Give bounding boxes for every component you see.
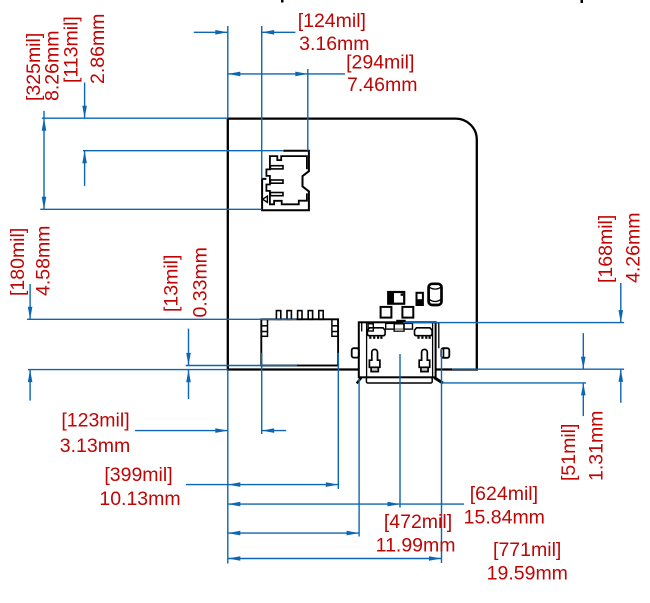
svg-text:[472mil]: [472mil] bbox=[384, 511, 452, 533]
svg-text:[51mil]: [51mil] bbox=[558, 424, 580, 481]
svg-text:4.58mm: 4.58mm bbox=[33, 226, 55, 296]
svg-text:2.86mm: 2.86mm bbox=[87, 14, 109, 84]
svg-text:4.26mm: 4.26mm bbox=[623, 213, 645, 283]
svg-text:3.13mm: 3.13mm bbox=[60, 435, 130, 457]
svg-text:[124mil]: [124mil] bbox=[298, 10, 366, 32]
svg-text:[399mil]: [399mil] bbox=[104, 464, 172, 486]
svg-text:[113mil]: [113mil] bbox=[60, 16, 82, 83]
svg-text:[168mil]: [168mil] bbox=[595, 215, 617, 283]
svg-text:0.33mm: 0.33mm bbox=[190, 247, 212, 317]
svg-text:[294mil]: [294mil] bbox=[346, 52, 414, 74]
svg-text:7.46mm: 7.46mm bbox=[347, 74, 417, 96]
svg-text:[123mil]: [123mil] bbox=[61, 410, 129, 432]
svg-text:10.13mm: 10.13mm bbox=[99, 488, 180, 510]
svg-text:[180mil]: [180mil] bbox=[7, 228, 29, 296]
svg-text:[624mil]: [624mil] bbox=[470, 483, 538, 505]
svg-text:11.99mm: 11.99mm bbox=[376, 535, 456, 557]
svg-text:[13mil]: [13mil] bbox=[161, 255, 183, 312]
svg-text:1.31mm: 1.31mm bbox=[585, 411, 607, 481]
svg-text:19.59mm: 19.59mm bbox=[487, 562, 568, 584]
svg-text:[771mil]: [771mil] bbox=[493, 539, 561, 561]
svg-text:15.84mm: 15.84mm bbox=[464, 507, 545, 529]
